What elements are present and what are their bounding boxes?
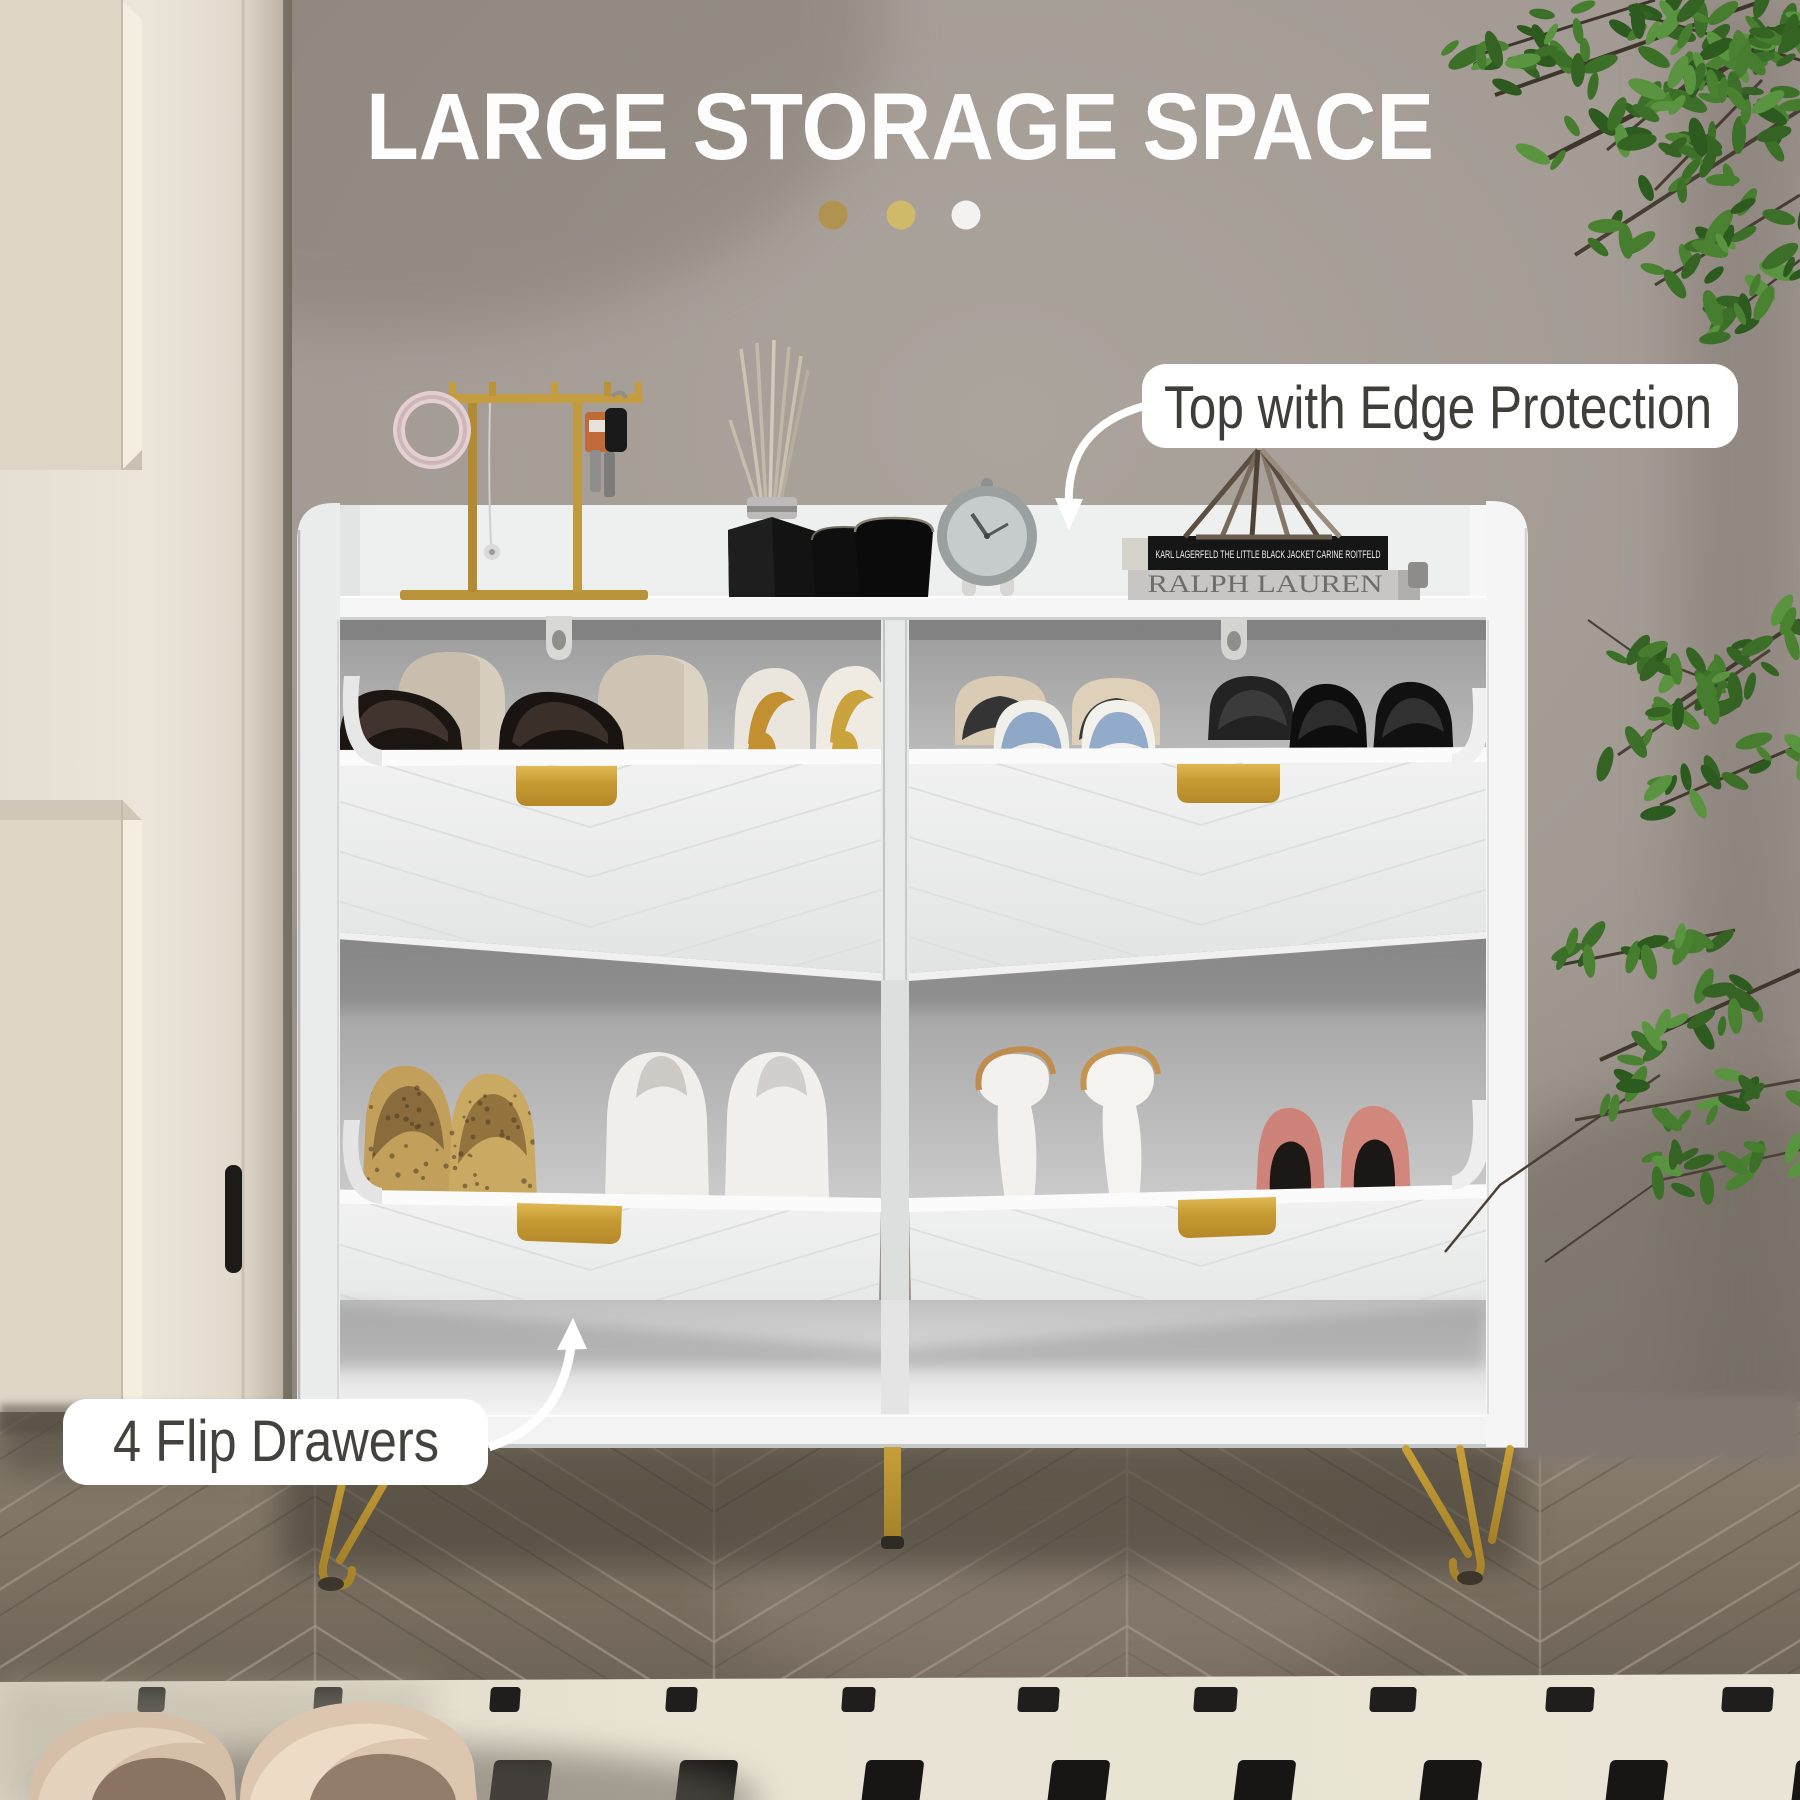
svg-text:KARL LAGERFELD THE LITTLE BLA: KARL LAGERFELD THE LITTLE BLACK JACKET C… bbox=[1156, 549, 1381, 561]
svg-text:RALPH LAUREN: RALPH LAUREN bbox=[1148, 571, 1383, 598]
svg-text:4 Flip Drawers: 4 Flip Drawers bbox=[113, 1409, 439, 1474]
svg-text:LARGE STORAGE SPACE: LARGE STORAGE SPACE bbox=[366, 74, 1434, 180]
svg-text:Top with Edge Protection: Top with Edge Protection bbox=[1164, 374, 1712, 441]
